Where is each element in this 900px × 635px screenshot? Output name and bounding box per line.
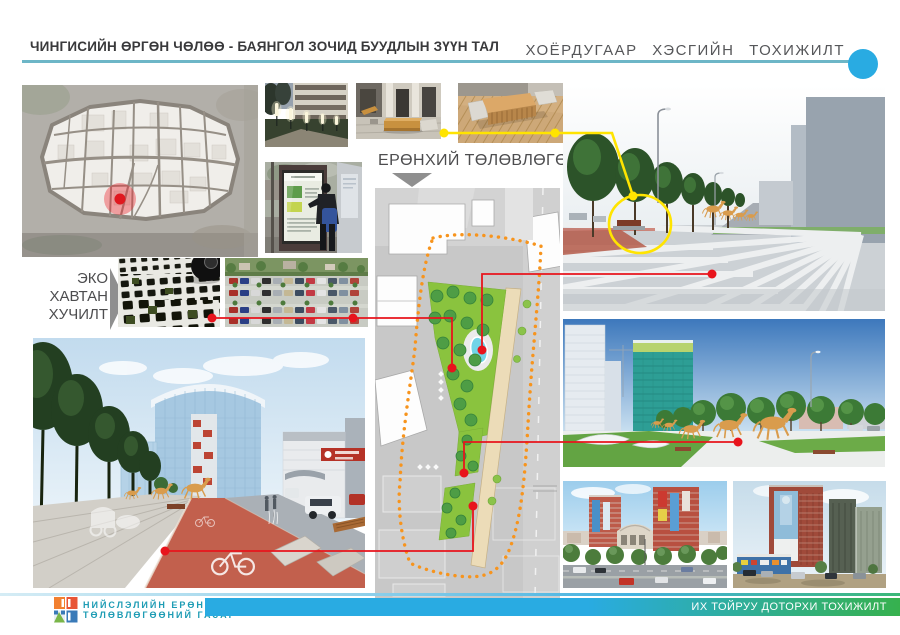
master-plan-drawing xyxy=(375,188,560,598)
photo-existing-site-1 xyxy=(563,481,727,588)
render-promenade xyxy=(563,85,885,311)
city-map xyxy=(22,85,258,257)
photo-deck-bench xyxy=(458,83,563,143)
page-title: ЧИНГИСИЙН ӨРГӨН ЧӨЛӨӨ - БАЯНГОЛ ЗОЧИД БУ… xyxy=(30,39,499,54)
organization-logo-icon xyxy=(54,597,78,623)
photo-info-kiosk xyxy=(265,162,362,253)
presentation-board: ЧИНГИСИЙН ӨРГӨН ЧӨЛӨӨ - БАЯНГОЛ ЗОЧИД БУ… xyxy=(0,0,900,635)
master-plan-label: ЕРӨНХИЙ ТӨЛӨВЛӨГӨӨ xyxy=(378,152,560,170)
photo-street-lights xyxy=(265,83,348,147)
header-rule xyxy=(22,60,849,63)
photo-existing-site-2 xyxy=(733,481,886,588)
eco-paving-label: ЭКО ХАВТАН ХУЧИЛТ xyxy=(30,270,108,324)
bench xyxy=(167,504,185,509)
map-marker-icon xyxy=(115,194,126,205)
bench xyxy=(617,220,641,226)
section-bullet-icon xyxy=(848,49,878,79)
section-title: ХОЁРДУГААР ХЭСГИЙН ТОХИЖИЛТ xyxy=(525,42,845,59)
render-boulevard xyxy=(33,338,365,588)
footer-accent-line xyxy=(0,593,900,596)
footer-banner: ИХ ТОЙРУУ ДОТОРХИ ТОХИЖИЛТ xyxy=(205,598,900,616)
photo-eco-paving xyxy=(118,258,220,327)
master-plan-arrow-icon xyxy=(392,173,432,187)
photo-courtyard-bench xyxy=(356,83,441,139)
render-plaza-horses xyxy=(563,319,885,467)
person-silhouette xyxy=(321,183,331,193)
photo-parking-lot xyxy=(225,258,368,327)
